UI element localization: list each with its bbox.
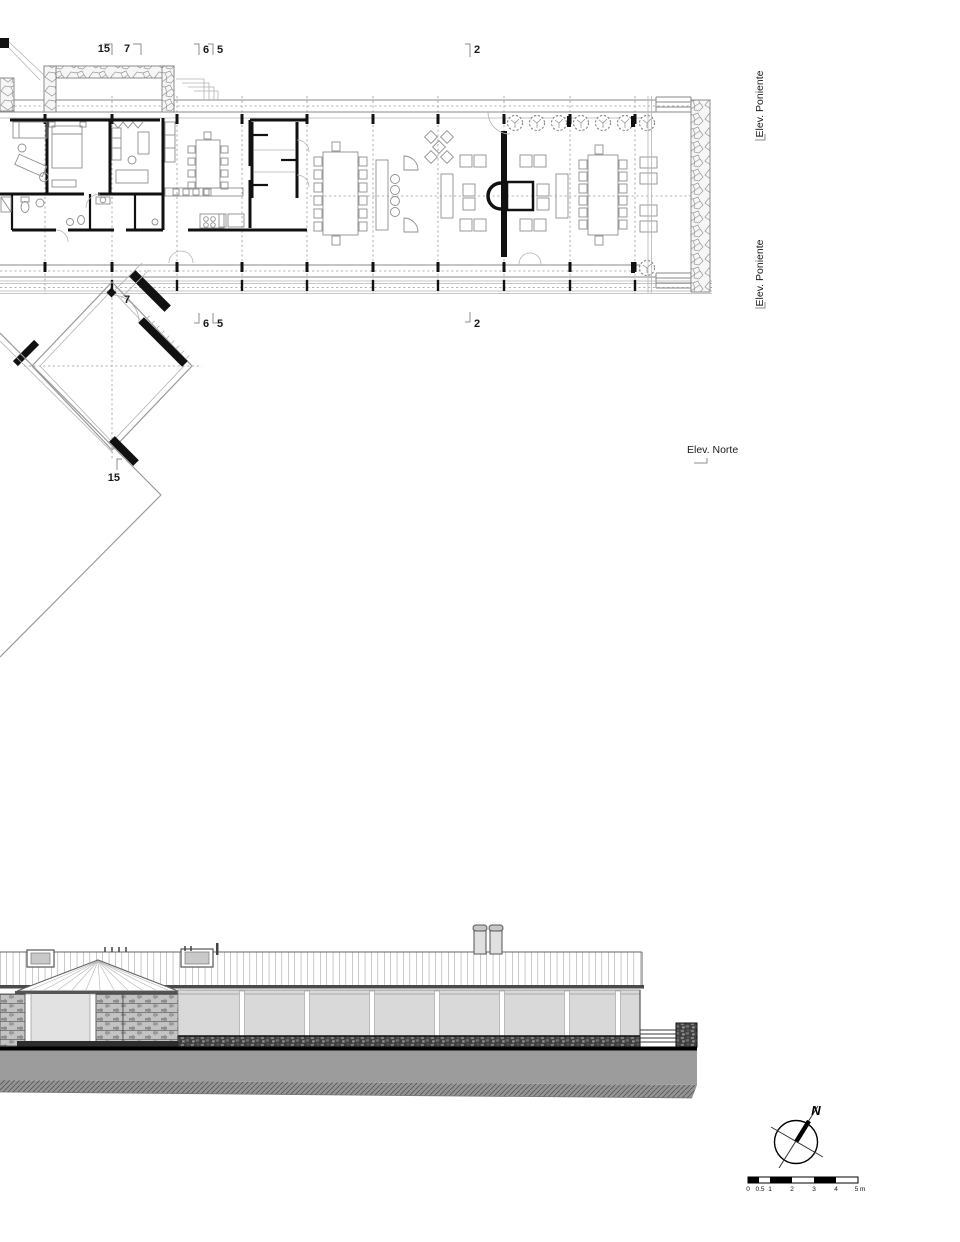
living-area <box>314 112 657 276</box>
stone-base <box>178 1036 640 1048</box>
scale-tick-3: 3 <box>812 1186 816 1193</box>
north-label: N <box>811 1103 821 1118</box>
east-dining-table <box>579 145 627 245</box>
scale-tick-0: 0 <box>746 1186 750 1193</box>
scale-tick-2: 2 <box>790 1186 794 1193</box>
diamond-deck <box>0 263 202 657</box>
structural-columns <box>44 114 637 291</box>
dining-table <box>188 132 228 196</box>
ground-line <box>0 1047 697 1051</box>
lounge-chairs <box>404 131 453 232</box>
section-marker-5-bottom: 5 <box>217 318 223 330</box>
scale-tick-5m: 5 m <box>855 1186 866 1193</box>
buffet <box>376 160 400 230</box>
section-marker-15-top: 15 <box>98 43 110 55</box>
scale-tick-1: 1 <box>768 1186 772 1193</box>
deck-stair <box>138 314 191 367</box>
elevation-drawing <box>0 925 697 1098</box>
section-marker-7-top: 7 <box>124 43 130 55</box>
scale-tick-4: 4 <box>834 1186 838 1193</box>
sitting-room-furniture <box>112 122 149 183</box>
side-stairs <box>640 1023 697 1047</box>
kitchen-dining <box>165 120 309 263</box>
wall-fragment <box>0 38 9 48</box>
section-markers: 15 7 6 5 2 7 6 5 2 15 <box>98 43 480 484</box>
stone-wall <box>123 994 178 1046</box>
section-marker-7-bottom: 7 <box>124 294 130 306</box>
stone-pier <box>0 994 25 1046</box>
deck-wall-south <box>109 436 139 466</box>
sofa-group-east <box>520 155 568 231</box>
architectural-drawing: 15 7 6 5 2 7 6 5 2 15 Elev. Poniente Ele… <box>0 0 960 1242</box>
section-marker-2-top: 2 <box>474 44 480 56</box>
section-marker-6-top: 6 <box>203 44 209 56</box>
bedroom-wing <box>0 118 307 242</box>
section-marker-6-bottom: 6 <box>203 318 209 330</box>
chimneys <box>473 925 503 954</box>
section-marker-2-bottom: 2 <box>474 318 480 330</box>
roof-vents <box>105 946 191 952</box>
stone-pier <box>96 994 123 1046</box>
entry-steps-north <box>656 97 691 112</box>
elev-poniente-label-upper: Elev. Poniente <box>754 70 766 137</box>
wall-cabinets <box>640 157 657 232</box>
elev-norte-label: Elev. Norte <box>687 444 738 456</box>
entry-steps-south <box>656 273 691 288</box>
grid-lines <box>0 96 712 460</box>
canvas: { "palette": { "ink": "#1a1a1a", "wall_b… <box>0 0 960 1242</box>
east-stone-wall <box>648 96 710 293</box>
ground-mass <box>0 1051 697 1099</box>
section-marker-5-top: 5 <box>217 44 223 56</box>
scale-bar: 0 0.5 1 2 3 4 5 m <box>746 1177 865 1193</box>
deck-platform-edge <box>0 333 161 657</box>
bed <box>13 122 47 138</box>
long-dining-table <box>314 142 367 245</box>
skylight <box>27 950 54 967</box>
elev-poniente-label-lower: Elev. Poniente <box>754 239 766 306</box>
skylight <box>181 949 213 967</box>
closet-cells <box>252 122 309 198</box>
bed <box>49 122 86 187</box>
fireplace <box>488 131 533 257</box>
floor-plan: 15 7 6 5 2 7 6 5 2 15 Elev. Poniente Ele… <box>0 38 766 657</box>
stove-and-fridge <box>200 214 244 228</box>
terraced-steps <box>176 79 218 100</box>
sofa-group-west <box>441 155 486 231</box>
tree-row <box>508 116 655 276</box>
section-marker-15-bottom: 15 <box>108 472 120 484</box>
desk-and-chair <box>15 144 49 182</box>
north-arrow: N <box>771 1103 823 1168</box>
scale-tick-05: 0.5 <box>755 1186 764 1193</box>
roof-antenna <box>216 943 219 955</box>
